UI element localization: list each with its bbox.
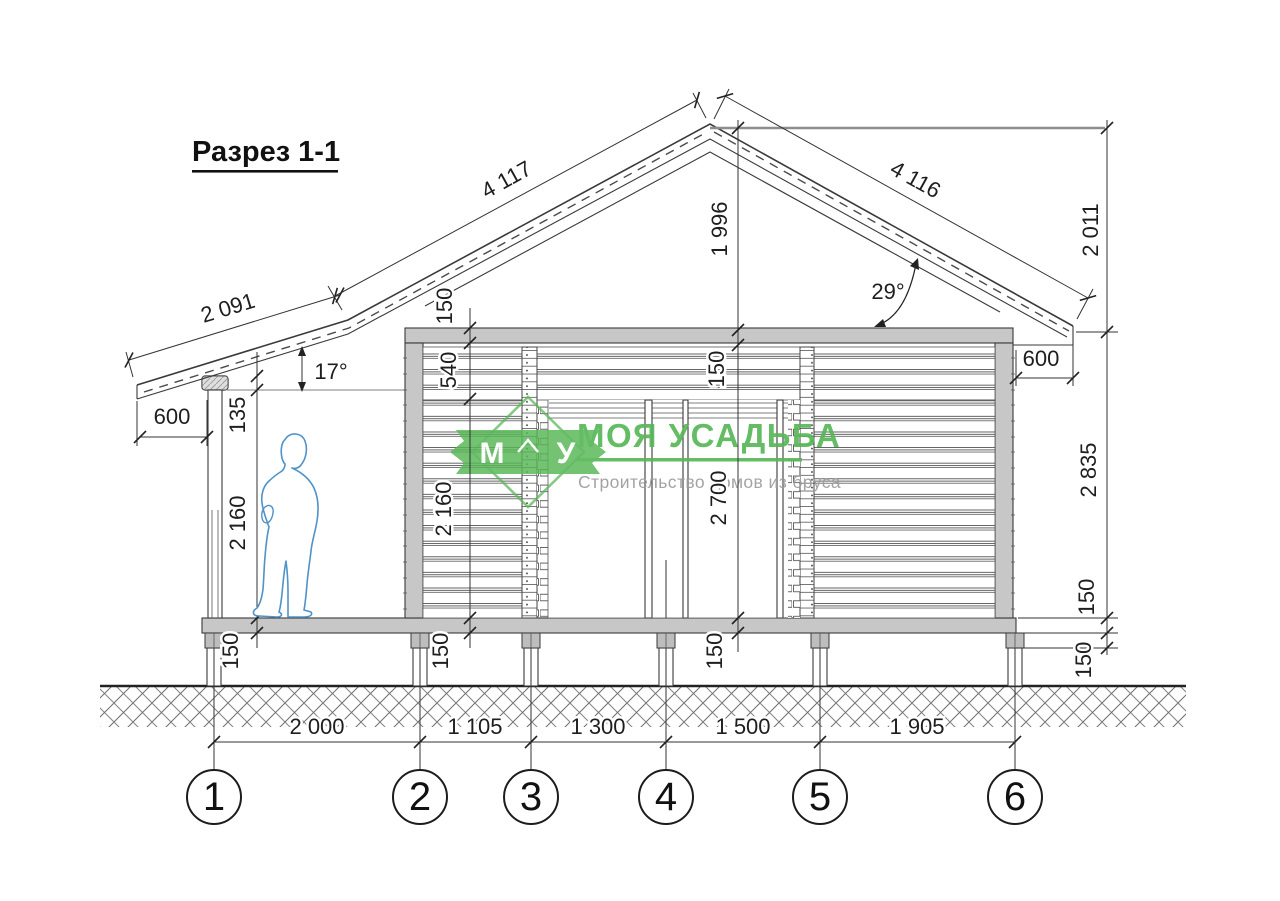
dim-roof-right-slope: 4 116 bbox=[886, 156, 945, 204]
dim-span-2-3: 1 105 bbox=[447, 714, 502, 739]
axis-bubble-3: 3 bbox=[504, 770, 558, 824]
foundation-piers bbox=[205, 633, 1024, 648]
axis-label-2: 2 bbox=[409, 775, 431, 819]
dim-roof-left-slope: 4 117 bbox=[477, 156, 536, 204]
top-plate bbox=[405, 328, 1013, 343]
grid-axes: 1 2 3 4 5 6 bbox=[187, 770, 1042, 824]
porch-post bbox=[208, 390, 222, 618]
axis-bubble-4: 4 bbox=[639, 770, 693, 824]
angle-porch-label: 17° bbox=[314, 359, 347, 384]
dim-porch-floor-150: 150 bbox=[218, 633, 243, 670]
angle-main-roof: 29° bbox=[871, 258, 919, 327]
dim-above-opening-540: 540 bbox=[436, 352, 461, 389]
dim-span-5-6: 1 905 bbox=[889, 714, 944, 739]
partition-axis-3 bbox=[522, 347, 537, 618]
dim-eave-left-600: 600 bbox=[154, 404, 191, 429]
dim-span-4-5: 1 500 bbox=[715, 714, 770, 739]
page-title: Разрез 1-1 bbox=[192, 136, 340, 168]
angle-porch-roof: 17° bbox=[298, 346, 348, 392]
dim-roof-left: 4 117 bbox=[327, 92, 705, 304]
title-underline bbox=[192, 170, 338, 173]
floor-beam bbox=[202, 618, 1016, 633]
axis-label-4: 4 bbox=[655, 775, 677, 819]
dim-eave-right-600: 600 bbox=[1023, 346, 1060, 371]
logo-monogram-left: М bbox=[480, 437, 505, 470]
dim-ridge-to-eave: 2 011 bbox=[1078, 203, 1103, 256]
dim-chain-right: 2 011 2 835 150 150 bbox=[1071, 120, 1113, 678]
human-figure bbox=[253, 434, 318, 617]
axis-bubble-2: 2 bbox=[393, 770, 447, 824]
dim-roof-right: 4 116 bbox=[717, 88, 1096, 306]
dim-floor-150-right: 150 bbox=[1074, 579, 1099, 616]
dim-ridge-height: 1 996 bbox=[707, 201, 732, 256]
foundation bbox=[202, 618, 1024, 686]
dim-porch-2160: 2 160 bbox=[225, 495, 250, 550]
dim-ceiling-150: 150 bbox=[704, 351, 729, 388]
person-outline bbox=[253, 434, 318, 617]
axis-label-1: 1 bbox=[203, 775, 225, 819]
logo-monogram-right: У bbox=[557, 437, 576, 470]
ground bbox=[100, 686, 1186, 727]
axis-bubble-6: 6 bbox=[988, 770, 1042, 824]
dim-wall-height: 2 835 bbox=[1076, 442, 1101, 497]
dim-clear-height-2700: 2 700 bbox=[706, 470, 731, 525]
dim-floor-150-center: 150 bbox=[702, 633, 727, 670]
axis-label-3: 3 bbox=[520, 775, 542, 819]
axis-bubble-5: 5 bbox=[793, 770, 847, 824]
axis-label-6: 6 bbox=[1004, 775, 1026, 819]
dim-eave-right: 600 bbox=[1010, 346, 1079, 384]
drawing-sheet: М У МОЯ УСАДЬБА Строительство домов из б… bbox=[0, 0, 1280, 901]
dim-pier-150-right: 150 bbox=[1071, 642, 1096, 679]
dim-span-1-2: 2 000 bbox=[289, 714, 344, 739]
dim-opening-2160: 2 160 bbox=[431, 481, 456, 536]
dim-porch-roof-slope: 2 091 bbox=[198, 288, 258, 328]
title-block: Разрез 1-1 bbox=[192, 136, 340, 173]
axis-label-5: 5 bbox=[809, 775, 831, 819]
section-drawing-canvas: М У МОЯ УСАДЬБА Строительство домов из б… bbox=[0, 0, 1280, 901]
left-wall-section bbox=[405, 343, 423, 618]
axis-bubble-1: 1 bbox=[187, 770, 241, 824]
angle-main-label: 29° bbox=[871, 279, 904, 304]
dim-floor-150-wall: 150 bbox=[428, 633, 453, 670]
dim-eave-left: 600 bbox=[134, 404, 213, 443]
dim-span-3-4: 1 300 bbox=[570, 714, 625, 739]
dim-bottom-string: 2 000 1 105 1 300 1 500 1 905 bbox=[208, 714, 1021, 748]
logo-underline bbox=[577, 458, 802, 462]
dim-porch-135: 135 bbox=[225, 397, 250, 434]
dim-top-plate-150: 150 bbox=[432, 288, 457, 325]
logo-name: МОЯ УСАДЬБА bbox=[577, 417, 841, 454]
foundation-posts bbox=[207, 648, 1022, 686]
